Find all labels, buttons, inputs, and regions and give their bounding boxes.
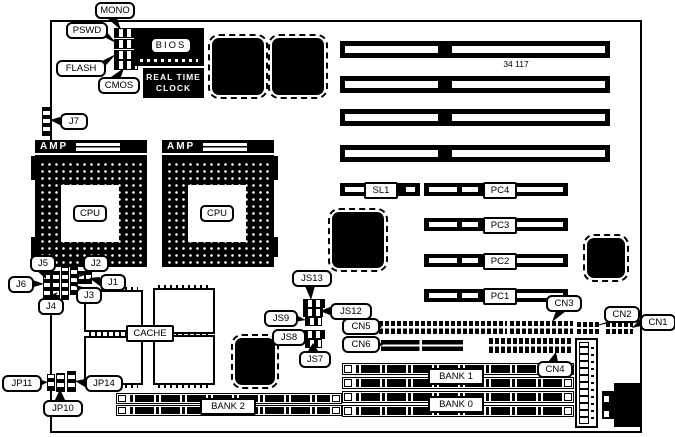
- amp-brand-label: AMP: [167, 141, 195, 152]
- label-js9: JS9: [264, 310, 298, 327]
- slot-contact: [429, 293, 457, 298]
- amp-barcode: [203, 143, 247, 151]
- label-flash: FLASH: [56, 60, 106, 77]
- label-pc3: PC3: [483, 217, 517, 234]
- slot-contact: [452, 150, 605, 157]
- jp11-jumper: [47, 374, 55, 391]
- rtc-text-line2: CLOCK: [143, 83, 204, 94]
- label-j2: J2: [83, 255, 109, 272]
- label-sl1: SL1: [364, 182, 398, 199]
- simm-latch: [344, 379, 352, 387]
- power-contacts: [591, 342, 594, 424]
- j6-jumper: [61, 267, 69, 300]
- cpu-socket-2: AMP CPU: [162, 140, 274, 267]
- isa-slot-4: [340, 145, 610, 162]
- label-bank1: BANK 1: [428, 368, 484, 385]
- label-pc4: PC4: [483, 182, 517, 199]
- slot-contact: [517, 222, 563, 227]
- slot-contact: [462, 187, 478, 192]
- cpu-label: CPU: [73, 205, 107, 222]
- simm-latch: [564, 407, 572, 415]
- simm-latch: [344, 365, 352, 373]
- slot-contact: [429, 258, 457, 263]
- js8-jumper: [303, 330, 325, 339]
- motherboard-diagram: REAL TIME CLOCK 34 117: [0, 0, 675, 437]
- cn6-connector: [381, 340, 463, 351]
- cn3-connector: [510, 321, 573, 334]
- qfp-chip-1: [212, 38, 264, 95]
- cpu-socket-2-amp-bar: AMP: [162, 140, 274, 155]
- keyboard-connector-pin: [604, 396, 609, 402]
- isa-slot-2: [340, 76, 610, 93]
- slot-contact: [406, 187, 415, 192]
- cpu-socket-1-center: CPU: [61, 185, 119, 242]
- cn4-connector: [489, 338, 571, 353]
- slot-contact: [429, 187, 457, 192]
- qfp-chip-4: [587, 238, 625, 278]
- power-connector: [575, 338, 598, 428]
- label-j3: J3: [76, 287, 102, 304]
- amp-brand-label: AMP: [40, 141, 68, 152]
- label-j6: J6: [8, 276, 34, 293]
- label-cn1: CN1: [640, 314, 675, 331]
- label-mono: MONO: [95, 2, 135, 19]
- simm-latch: [332, 395, 340, 402]
- label-pswd: PSWD: [66, 22, 108, 39]
- label-cn6: CN6: [342, 336, 380, 353]
- slot-contact: [345, 150, 438, 157]
- slot-contact: [462, 293, 478, 298]
- qfp-chip-2: [272, 38, 324, 95]
- slot-contact: [462, 258, 478, 263]
- power-contacts: [579, 342, 589, 424]
- slot-contact: [429, 222, 457, 227]
- rtc-chip: REAL TIME CLOCK: [143, 68, 204, 98]
- slot-contact: [452, 114, 605, 121]
- simm-latch: [564, 379, 572, 387]
- j2-jumper: [78, 271, 85, 284]
- slot-contact: [345, 114, 438, 121]
- jp10-jumper: [56, 373, 65, 392]
- cpu-socket-1: AMP CPU: [35, 140, 147, 267]
- slot-contact: [462, 222, 478, 227]
- js9-jumper: [305, 317, 322, 326]
- cpu-socket-1-amp-bar: AMP: [35, 140, 147, 155]
- keyboard-connector-pin: [604, 411, 609, 417]
- simm-latch: [564, 393, 572, 401]
- simm-latch: [118, 395, 126, 402]
- label-jp11: JP11: [2, 375, 42, 392]
- label-j7: J7: [60, 113, 88, 130]
- label-cn2: CN2: [604, 306, 640, 323]
- label-pc1: PC1: [483, 288, 517, 305]
- keyboard-connector: [614, 383, 640, 427]
- label-j1: J1: [100, 274, 126, 291]
- cn5-connector: [379, 321, 507, 334]
- board-part-number: 34 117: [494, 59, 538, 69]
- simm-latch: [344, 393, 352, 401]
- cpu-socket-2-center: CPU: [188, 185, 246, 242]
- slot-contact: [517, 187, 563, 192]
- label-jp14: JP14: [85, 375, 123, 392]
- label-jp10: JP10: [43, 400, 83, 417]
- label-js13: JS13: [292, 270, 332, 287]
- bios-socket-pins: [140, 59, 198, 62]
- simm-latch: [332, 407, 340, 414]
- js7-jumper: [305, 339, 322, 348]
- cache-chip-4: [153, 335, 215, 385]
- cpu-socket-2-tab: [274, 237, 278, 257]
- js13-jumper: [303, 299, 325, 308]
- label-bios: BIOS: [150, 37, 192, 54]
- label-pc2: PC2: [483, 253, 517, 270]
- slot-contact: [345, 81, 438, 88]
- label-cache: CACHE: [126, 325, 174, 342]
- isa-slot-1: [340, 41, 610, 58]
- label-cn3: CN3: [546, 295, 582, 312]
- j7-jumper: [42, 107, 51, 136]
- label-bank0: BANK 0: [428, 396, 484, 413]
- label-js8: JS8: [272, 329, 306, 346]
- slot-contact: [345, 46, 438, 53]
- simm-latch: [344, 407, 352, 415]
- cn2-header: [577, 322, 601, 334]
- label-js7: JS7: [299, 351, 331, 368]
- j4-jumper: [52, 271, 60, 300]
- qfp-chip-5: [235, 338, 275, 385]
- label-cn5: CN5: [342, 318, 380, 335]
- isa-slot-3: [340, 109, 610, 126]
- slot-contact: [452, 46, 605, 53]
- label-cn4: CN4: [537, 361, 573, 378]
- label-bank2: BANK 2: [200, 398, 256, 415]
- jp14-jumper: [67, 371, 76, 392]
- amp-barcode: [76, 143, 120, 151]
- qfp-chip-3: [332, 212, 384, 268]
- simm-latch: [118, 407, 126, 414]
- slot-contact: [452, 81, 605, 88]
- slot-contact: [345, 187, 365, 192]
- j5-jumper: [43, 271, 51, 300]
- cpu-socket-2-tab: [274, 156, 278, 180]
- js12-jumper: [303, 308, 323, 317]
- slot-contact: [517, 258, 563, 263]
- label-j4: J4: [38, 298, 64, 315]
- cn1-header: [606, 322, 633, 334]
- label-j5: J5: [30, 255, 56, 272]
- cpu-label: CPU: [200, 205, 234, 222]
- j1-jumper: [85, 271, 92, 284]
- rtc-text-line1: REAL TIME: [143, 72, 204, 83]
- label-cmos: CMOS: [98, 77, 140, 94]
